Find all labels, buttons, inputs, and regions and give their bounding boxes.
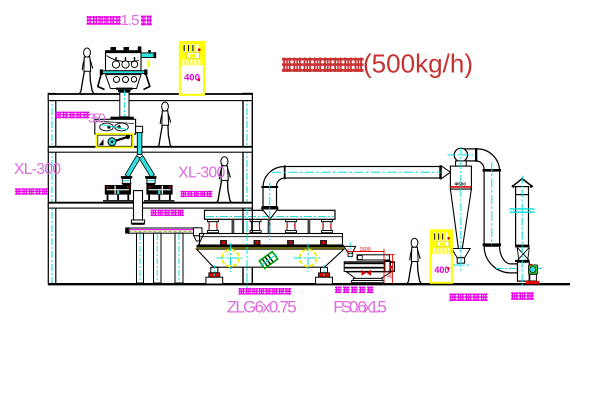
svg-text:350: 350 — [88, 110, 106, 125]
svg-text:XL-300: XL-300 — [14, 161, 61, 178]
svg-text:1.5: 1.5 — [121, 12, 140, 29]
svg-text:FS0.6x1.5: FS0.6x1.5 — [333, 297, 387, 316]
svg-text:ZLG6x0.75: ZLG6x0.75 — [227, 297, 297, 316]
svg-text:300: 300 — [388, 270, 394, 279]
svg-text:400: 400 — [434, 265, 449, 275]
svg-text:1500: 1500 — [360, 247, 371, 253]
svg-text:(500kg/h): (500kg/h) — [363, 49, 473, 79]
svg-text:400: 400 — [184, 73, 200, 84]
svg-text:XL-300: XL-300 — [178, 165, 225, 182]
